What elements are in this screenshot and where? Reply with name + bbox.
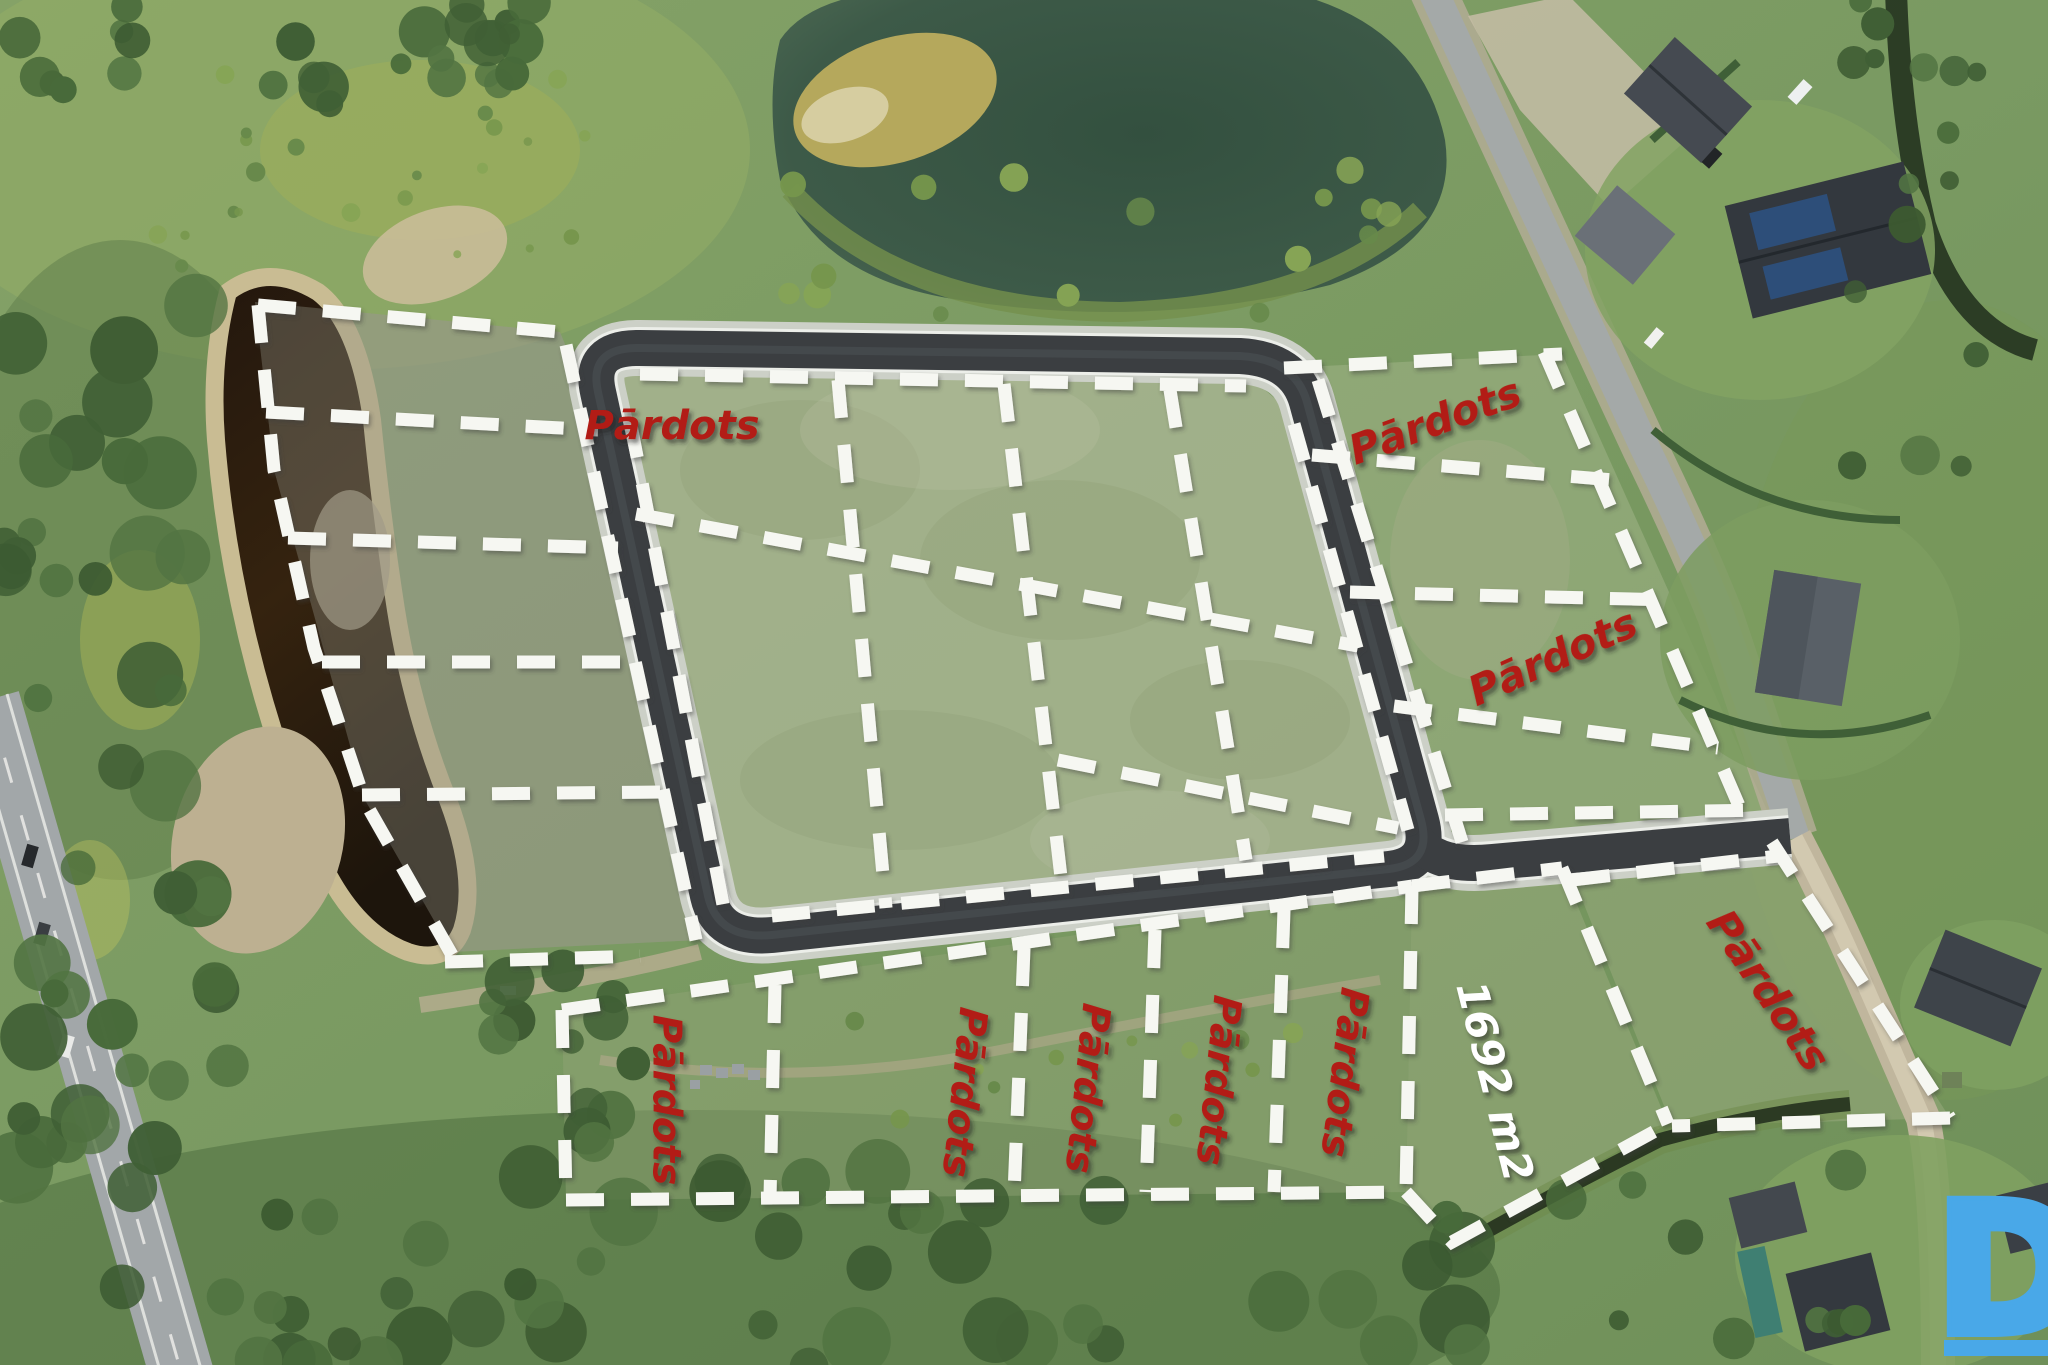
tree (299, 62, 349, 112)
watermark-logo: D (1935, 1166, 2048, 1365)
tree (811, 264, 836, 289)
tree (61, 850, 96, 885)
tree (1126, 198, 1154, 226)
tree (149, 225, 167, 243)
tree (234, 208, 243, 217)
tree (254, 1291, 287, 1324)
tree (1840, 1305, 1871, 1336)
tree (448, 1291, 505, 1348)
tree (102, 438, 148, 484)
tree (41, 979, 69, 1007)
tree (192, 962, 237, 1007)
tree (1063, 1304, 1103, 1344)
tree (164, 274, 228, 338)
north-pond (773, 0, 1447, 312)
tree (259, 71, 288, 100)
tree (108, 1163, 158, 1213)
tree (1900, 436, 1940, 476)
tree (1000, 163, 1029, 192)
tree (453, 250, 461, 258)
tree (115, 1054, 149, 1088)
tree (261, 1199, 293, 1231)
tree (478, 1014, 519, 1055)
tree (504, 1268, 536, 1300)
tree (1315, 189, 1333, 207)
tree (1181, 1042, 1198, 1059)
tree (107, 56, 141, 90)
tree (1285, 246, 1311, 272)
tree (79, 562, 113, 596)
tree (1336, 157, 1363, 184)
tree (1127, 1036, 1138, 1047)
tree (548, 70, 567, 89)
tree (98, 744, 144, 790)
tree (499, 1145, 563, 1209)
tree (1910, 53, 1938, 81)
tree (1899, 174, 1919, 194)
tree (780, 172, 806, 198)
tree (911, 175, 936, 200)
tree (567, 1088, 607, 1128)
tree (590, 1178, 658, 1246)
tree (1940, 56, 1970, 86)
tree (412, 171, 422, 181)
tree (1963, 342, 1988, 367)
tree (216, 65, 235, 84)
tree (748, 1310, 777, 1339)
tree (1250, 303, 1270, 323)
tree (1837, 46, 1870, 79)
aerial-plot-map: Pārdots Pārdots Pārdots Pārdots Pārdots … (0, 0, 2048, 1365)
tree (1937, 122, 1959, 144)
tree (1940, 171, 1959, 190)
tree (526, 244, 534, 252)
tree (1245, 1063, 1259, 1077)
tree (7, 1102, 40, 1135)
tree (19, 434, 73, 488)
tree (40, 564, 74, 598)
tree (1057, 284, 1080, 307)
tree (328, 1327, 361, 1360)
tree (778, 283, 800, 305)
tree (524, 137, 533, 146)
tree (24, 684, 52, 712)
tree (391, 53, 412, 74)
tree (175, 259, 188, 272)
tree (1248, 1271, 1309, 1332)
tree (1376, 202, 1401, 227)
tree (110, 516, 185, 591)
tree (403, 1221, 449, 1267)
tree (50, 76, 77, 103)
tree (486, 119, 503, 136)
tree (149, 1060, 189, 1100)
tree (445, 3, 488, 46)
tree (206, 1045, 249, 1088)
tree (1951, 456, 1972, 477)
tree (246, 162, 265, 181)
tree (19, 399, 52, 432)
tree (963, 1297, 1029, 1363)
tree (61, 1096, 120, 1155)
tree (180, 231, 189, 240)
tree (154, 871, 198, 915)
tree (1319, 1270, 1378, 1329)
tree (1283, 1023, 1303, 1043)
tree (380, 1277, 413, 1310)
tree (398, 190, 413, 205)
tree (1838, 451, 1866, 479)
tree (1049, 1050, 1064, 1065)
logo-letter: D (1935, 1166, 2048, 1365)
tree (847, 1246, 892, 1291)
tree (960, 1178, 1009, 1227)
tree (241, 128, 252, 139)
sold-label-south-1: Pārdots (644, 1015, 689, 1186)
tree (478, 106, 493, 121)
tree (1169, 1114, 1182, 1127)
sold-label-central-nw: Pārdots (584, 403, 759, 449)
tree (427, 59, 466, 98)
tree (890, 1110, 909, 1129)
tree (1668, 1219, 1703, 1254)
tree (933, 306, 949, 322)
tree (1431, 1201, 1464, 1234)
tree (574, 1122, 614, 1162)
tree (1713, 1318, 1755, 1360)
tree (1402, 1240, 1452, 1290)
tree (114, 23, 150, 59)
tree (564, 229, 580, 245)
tree (755, 1212, 802, 1259)
tree (499, 23, 520, 44)
plot-line (445, 956, 640, 962)
shed (1942, 1072, 1962, 1088)
tree (1825, 1150, 1866, 1191)
tree (577, 1247, 605, 1275)
tree (288, 139, 305, 156)
tree (0, 17, 41, 59)
tree (1967, 63, 1986, 82)
tree (579, 130, 590, 141)
tree (302, 1199, 339, 1236)
tree (988, 1081, 1000, 1093)
tree (477, 163, 488, 174)
tree (1844, 280, 1867, 303)
tree (845, 1012, 864, 1031)
tree (207, 1278, 244, 1315)
tree (1865, 49, 1884, 68)
tree (100, 1265, 145, 1310)
tree (1619, 1171, 1646, 1198)
plot-line (562, 1010, 566, 1200)
tree (276, 22, 315, 61)
tree (928, 1220, 992, 1284)
tree (689, 1160, 751, 1222)
logo-underline (1944, 1340, 2048, 1356)
tree (87, 999, 138, 1050)
tree (0, 1003, 67, 1070)
tree (1609, 1310, 1629, 1330)
aerial-photo: Pārdots Pārdots Pārdots Pārdots Pārdots … (0, 0, 2048, 1365)
tree (155, 674, 187, 706)
tree (1889, 206, 1926, 243)
tree (1359, 225, 1378, 244)
tree (1861, 7, 1894, 40)
tree (342, 203, 361, 222)
